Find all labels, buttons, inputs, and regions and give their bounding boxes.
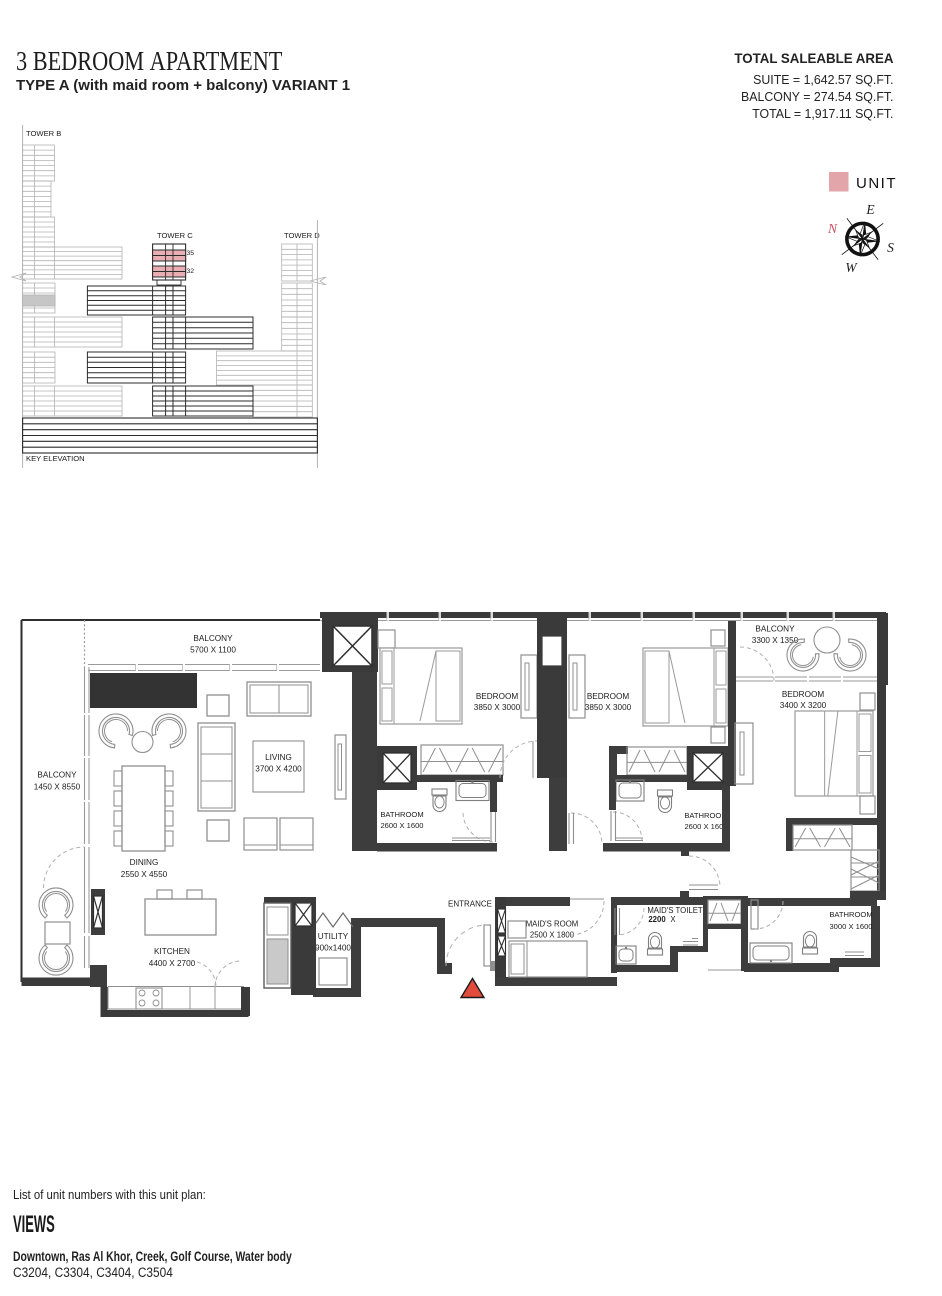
svg-text:3850 X 3000: 3850 X 3000	[474, 703, 521, 712]
svg-text:W: W	[845, 260, 858, 275]
svg-text:5700 X 1100: 5700 X 1100	[190, 646, 236, 655]
svg-text:35: 35	[187, 250, 195, 257]
svg-text:2200: 2200	[648, 915, 666, 924]
svg-text:BEDROOM: BEDROOM	[782, 690, 824, 699]
svg-text:1450 X 8550: 1450 X 8550	[34, 783, 81, 792]
svg-text:32: 32	[187, 268, 195, 275]
svg-text:KEY ELEVATION: KEY ELEVATION	[26, 454, 85, 463]
svg-text:TOWER D: TOWER D	[284, 231, 320, 240]
svg-text:2500 X 1800: 2500 X 1800	[530, 931, 575, 940]
svg-text:2600 X 1600: 2600 X 1600	[380, 821, 423, 830]
svg-text:UNIT: UNIT	[856, 175, 897, 192]
svg-text:BATHROOM: BATHROOM	[684, 811, 727, 820]
svg-text:TOWER B: TOWER B	[26, 129, 61, 138]
svg-text:BATHROOM: BATHROOM	[380, 810, 423, 819]
svg-text:BALCONY: BALCONY	[193, 634, 233, 643]
svg-text:3400 X 3200: 3400 X 3200	[780, 701, 827, 710]
svg-text:TOWER C: TOWER C	[157, 231, 193, 240]
svg-text:3700 X 4200: 3700 X 4200	[255, 765, 302, 774]
svg-text:DINING: DINING	[130, 858, 159, 867]
svg-text:UTILITY: UTILITY	[318, 932, 349, 941]
svg-text:ENTRANCE: ENTRANCE	[448, 900, 492, 909]
svg-text:N: N	[827, 221, 838, 236]
svg-text:BEDROOM: BEDROOM	[476, 692, 518, 701]
svg-text:MAID'S ROOM: MAID'S ROOM	[526, 920, 579, 929]
svg-text:BALCONY: BALCONY	[755, 625, 795, 634]
svg-text:E: E	[865, 202, 875, 217]
svg-text:3850 X 3000: 3850 X 3000	[585, 703, 632, 712]
svg-text:3000 X 1600: 3000 X 1600	[829, 922, 872, 931]
svg-text:4400 X 2700: 4400 X 2700	[149, 959, 196, 968]
svg-text:BATHROOM: BATHROOM	[829, 910, 872, 919]
svg-text:BALCONY: BALCONY	[37, 771, 77, 780]
svg-text:MAID'S TOILET: MAID'S TOILET	[647, 906, 703, 915]
svg-text:S: S	[887, 240, 894, 255]
svg-text:LIVING: LIVING	[265, 753, 292, 762]
svg-text:BEDROOM: BEDROOM	[587, 692, 629, 701]
svg-text:900x1400: 900x1400	[315, 944, 351, 953]
svg-text:2550 X 4550: 2550 X 4550	[121, 870, 168, 879]
svg-text:X: X	[670, 915, 676, 924]
svg-text:2600 X 1600: 2600 X 1600	[684, 822, 727, 831]
svg-text:KITCHEN: KITCHEN	[154, 947, 190, 956]
